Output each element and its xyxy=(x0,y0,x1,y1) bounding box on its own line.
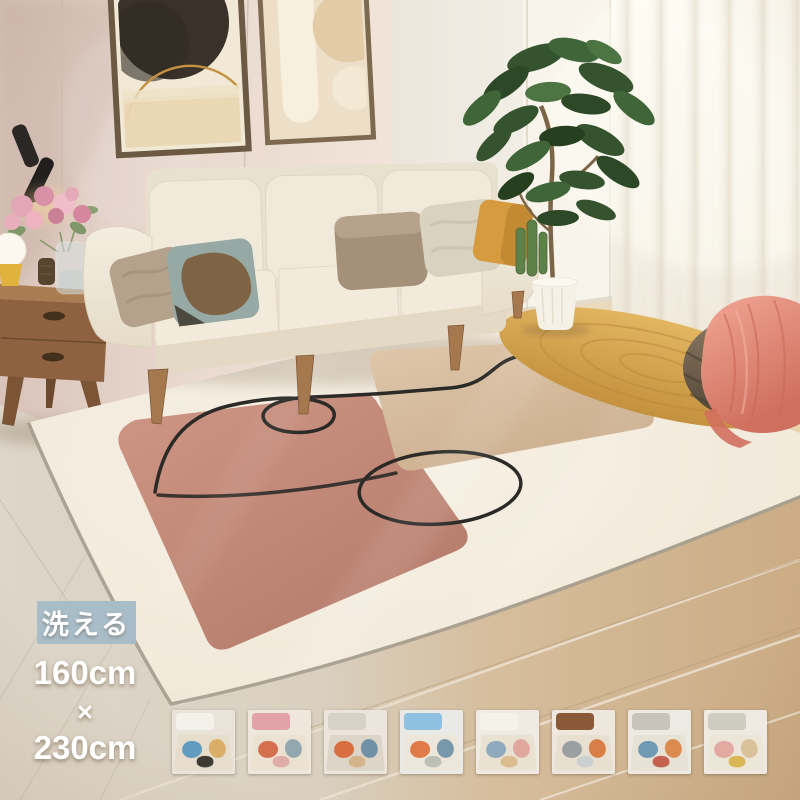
thumb-furniture xyxy=(632,713,670,731)
thumb-rug xyxy=(706,735,766,770)
variant-thumbnail-3[interactable] xyxy=(324,710,387,774)
thumb-rug xyxy=(174,735,234,770)
size-width-label: 230cm xyxy=(12,731,158,764)
thumb-rug xyxy=(630,735,690,770)
thumb-furniture xyxy=(708,713,746,731)
variant-thumbnail-7[interactable] xyxy=(628,710,691,774)
variant-thumbnail-1[interactable] xyxy=(172,710,235,774)
washable-badge-label: 洗える xyxy=(42,603,131,642)
thumb-furniture xyxy=(252,713,290,731)
product-photo: 洗える 160cm × 230cm xyxy=(0,0,800,800)
variant-thumbnail-5[interactable] xyxy=(476,710,539,774)
thumb-furniture xyxy=(480,713,518,731)
thumb-rug xyxy=(478,735,538,770)
thumb-rug xyxy=(250,735,310,770)
thumb-furniture xyxy=(404,713,442,731)
variant-thumbnail-4[interactable] xyxy=(400,710,463,774)
thumb-rug xyxy=(402,735,462,770)
thumb-rug xyxy=(554,735,614,770)
variant-thumbnail-strip xyxy=(172,710,767,774)
size-multiply-sign: × xyxy=(12,699,158,726)
variant-thumbnail-2[interactable] xyxy=(248,710,311,774)
thumb-rug xyxy=(326,735,386,770)
washable-badge: 洗える xyxy=(37,601,136,644)
thumb-furniture xyxy=(176,713,214,731)
thumb-furniture xyxy=(328,713,366,731)
size-height-label: 160cm xyxy=(12,656,158,689)
variant-thumbnail-6[interactable] xyxy=(552,710,615,774)
variant-thumbnail-8[interactable] xyxy=(704,710,767,774)
thumb-furniture xyxy=(556,713,594,731)
